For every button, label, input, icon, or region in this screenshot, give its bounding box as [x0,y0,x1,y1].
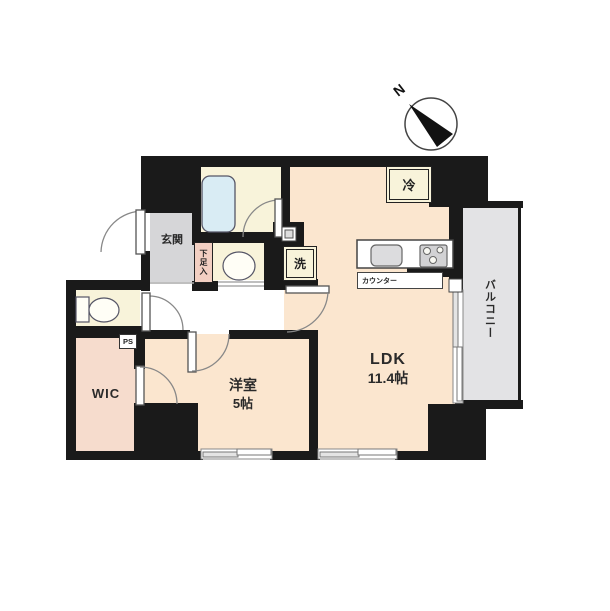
wall-segment [66,451,203,460]
floorplan-canvas: N 玄関 下足入 洗 冷 カウンター PS WIC 洋室 5帖 LDK 11.4… [0,0,610,611]
pipe-space-label: PS [123,337,133,346]
compass-icon [405,98,457,150]
wall-segment [66,326,150,338]
refrigerator-box: 冷 [386,166,432,203]
washer-box: 洗 [283,246,317,281]
wall-segment [270,451,320,460]
washer-label: 洗 [286,249,314,278]
wall-segment [455,400,523,409]
wall-segment [66,280,76,460]
bathtub-icon [202,176,235,232]
stove-icon [420,245,447,267]
entrance-door [101,210,145,254]
entrance-label: 玄関 [150,232,194,248]
wall-segment [66,280,150,290]
kitchen-counter-icon [357,240,453,268]
shoe-cabinet-label: 下足入 [198,249,209,276]
balcony-label: バルコニー [476,270,502,348]
wall-segment [229,330,318,339]
toilet-icon [76,297,119,322]
western-room-name-label: 洋室 [180,376,306,394]
wall-segment [428,404,486,460]
western-room-window [201,449,272,459]
refrigerator-label: 冷 [389,169,429,200]
wall-segment [455,201,523,208]
balcony-sliding-door [453,290,463,403]
washbasin-icon [223,252,255,280]
kitchen-sink-icon [371,245,402,266]
wall-niche-icon [449,279,462,292]
washroom-sliding-door [218,280,264,289]
wall-segment [309,332,318,454]
wic-label: WIC [70,384,142,402]
wall-segment [518,204,521,407]
shoe-cabinet-box: 下足入 [194,242,213,283]
ldk-name-label: LDK [330,350,446,369]
ldk-size-label: 11.4帖 [330,369,446,386]
ldk-window [318,449,397,459]
western-room-size-label: 5帖 [180,395,306,411]
counter-label: カウンター [362,276,397,286]
floorplan-drawing [0,0,610,611]
pipe-space-box: PS [119,334,137,349]
meter-box-icon [282,227,296,241]
wall-segment [429,156,488,207]
counter-label-box: カウンター [357,272,443,289]
